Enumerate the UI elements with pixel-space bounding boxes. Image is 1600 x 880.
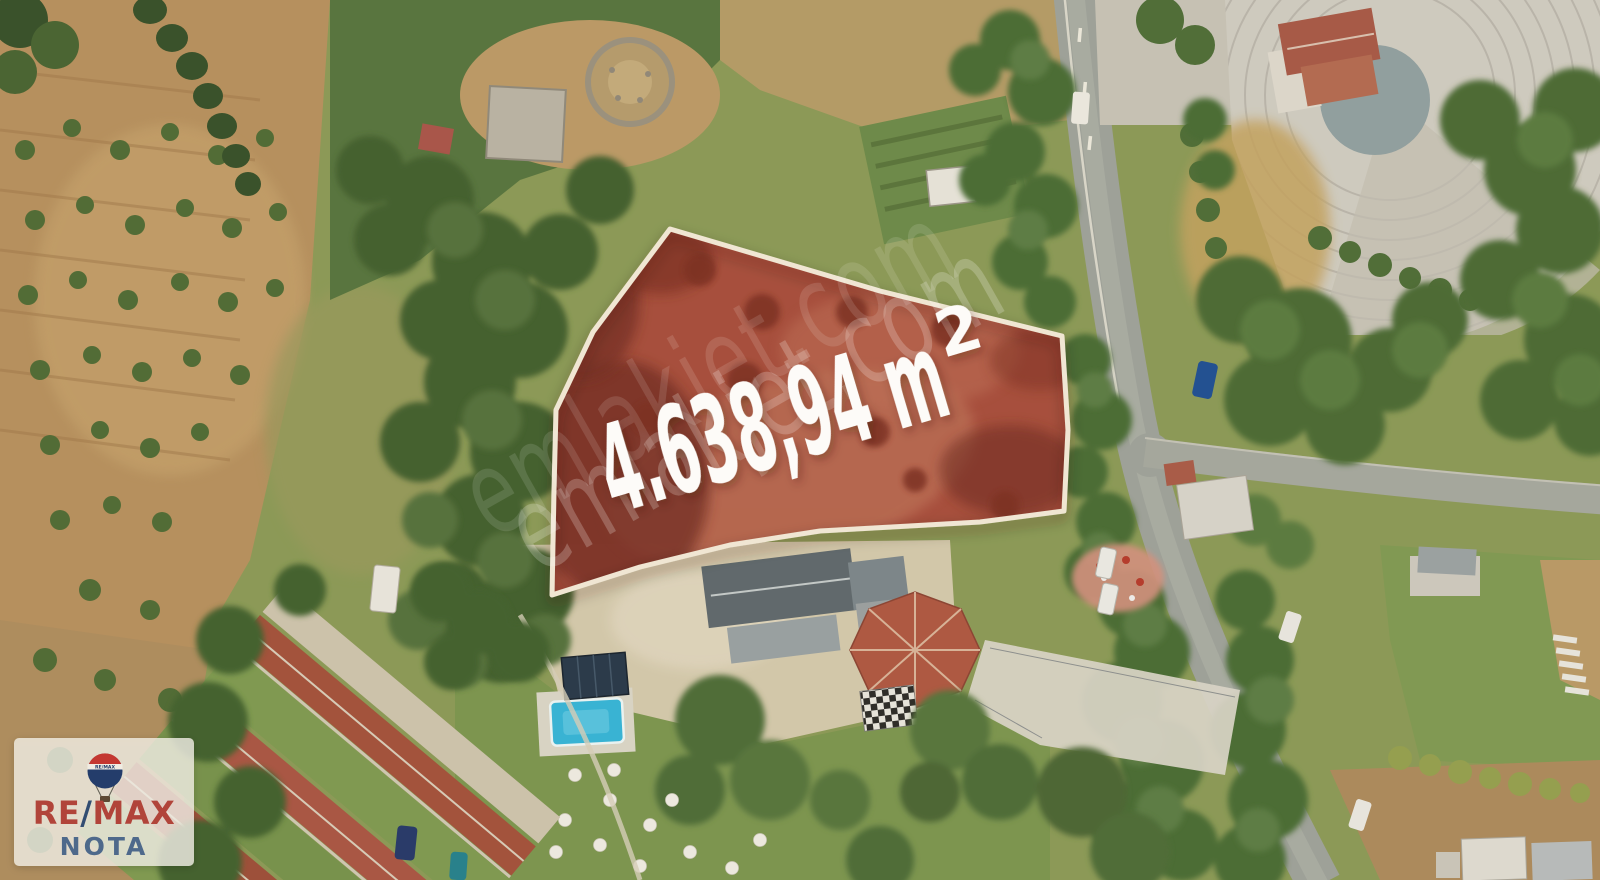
photo-tint [0,0,1600,880]
aerial-photo: emlakjet.com emlakjet.com 4.638,94 m 2 R… [0,0,1600,880]
aerial-scene: emlakjet.com emlakjet.com 4.638,94 m 2 R… [0,0,1600,880]
